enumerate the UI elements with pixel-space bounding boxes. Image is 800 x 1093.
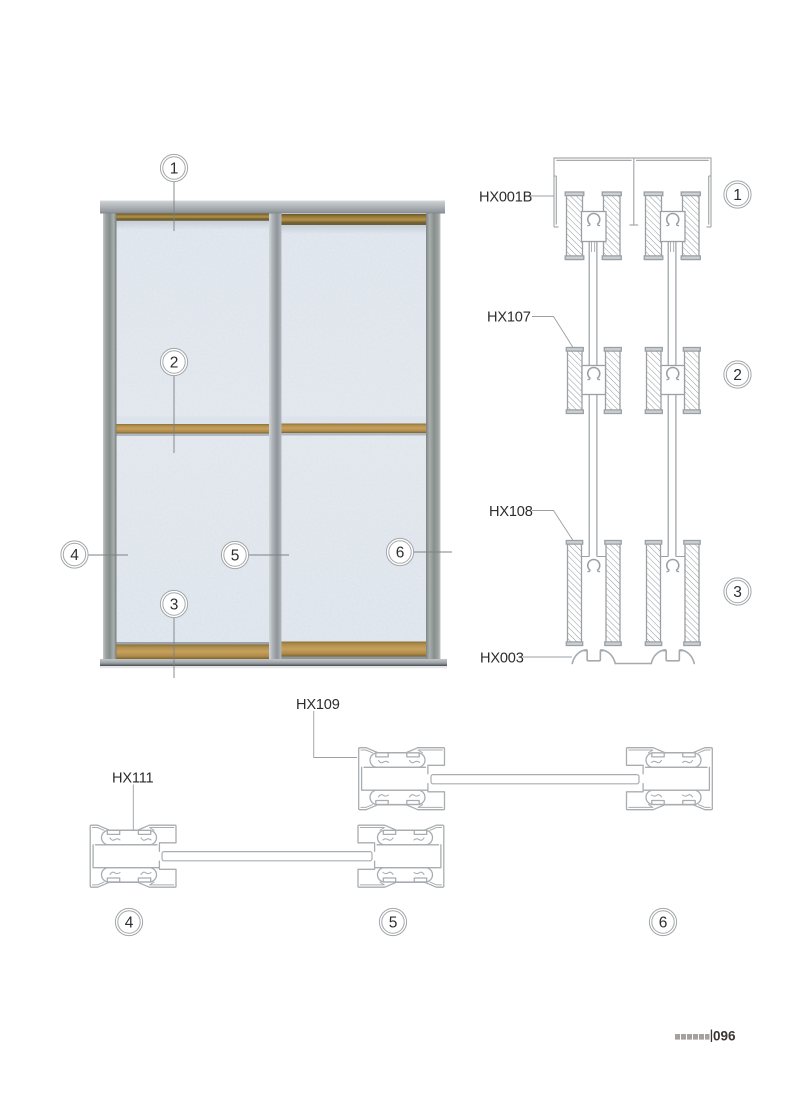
svg-text:096: 096	[713, 1029, 736, 1044]
svg-text:6: 6	[659, 915, 668, 932]
svg-text:HX001B: HX001B	[479, 190, 532, 206]
svg-text:4: 4	[70, 547, 79, 564]
svg-text:HX108: HX108	[489, 504, 533, 520]
svg-text:2: 2	[733, 367, 742, 384]
svg-text:5: 5	[389, 915, 398, 932]
svg-text:3: 3	[170, 597, 179, 614]
svg-text:5: 5	[231, 548, 240, 565]
svg-text:HX003: HX003	[480, 651, 524, 667]
svg-text:6: 6	[396, 545, 405, 562]
svg-text:3: 3	[733, 584, 742, 601]
svg-text:4: 4	[125, 915, 134, 932]
svg-text:2: 2	[170, 355, 179, 372]
svg-text:HX107: HX107	[487, 310, 531, 326]
svg-text:HX111: HX111	[112, 771, 154, 787]
svg-text:1: 1	[170, 161, 179, 178]
svg-text:HX109: HX109	[296, 697, 340, 713]
svg-text:1: 1	[733, 187, 742, 204]
